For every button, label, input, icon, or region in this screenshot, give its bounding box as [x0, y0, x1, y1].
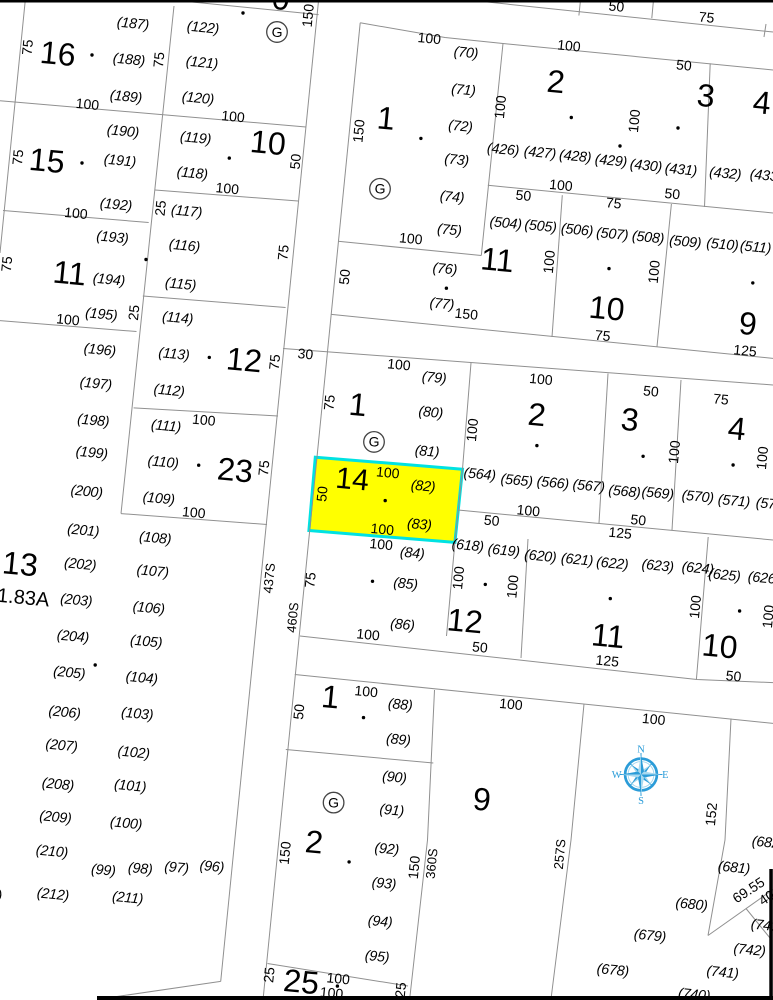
svg-text:(678): (678) [596, 961, 630, 980]
svg-text:(96): (96) [199, 858, 225, 876]
svg-text:(618): (618) [451, 536, 485, 555]
svg-text:(742): (742) [733, 941, 767, 960]
svg-text:(110): (110) [147, 453, 179, 472]
svg-text:G: G [328, 794, 339, 810]
svg-text:(626): (626) [747, 569, 773, 588]
svg-text:75: 75 [19, 39, 36, 56]
svg-text:(619): (619) [487, 542, 521, 561]
svg-text:2: 2 [526, 396, 547, 434]
svg-text:(114): (114) [161, 309, 193, 328]
svg-text:100: 100 [463, 417, 481, 442]
svg-text:(98): (98) [127, 860, 153, 878]
svg-text:(504): (504) [489, 214, 523, 233]
svg-text:50: 50 [664, 185, 681, 202]
svg-text:75: 75 [698, 8, 715, 25]
svg-text:100: 100 [665, 439, 683, 464]
svg-text:50: 50 [313, 485, 330, 502]
svg-text:100: 100 [369, 535, 394, 553]
svg-text:(622): (622) [596, 554, 630, 573]
svg-text:100: 100 [503, 574, 521, 599]
svg-text:3: 3 [619, 401, 640, 439]
svg-text:100: 100 [354, 682, 379, 700]
svg-text:125: 125 [595, 652, 620, 670]
svg-text:100: 100 [387, 355, 412, 373]
svg-text:(188): (188) [112, 51, 146, 70]
svg-text:10: 10 [587, 289, 626, 328]
svg-text:(740): (740) [677, 986, 711, 1000]
svg-text:(564): (564) [463, 465, 497, 484]
svg-text:(508): (508) [631, 228, 665, 247]
svg-text:(83): (83) [406, 516, 432, 534]
svg-text:(71): (71) [450, 81, 476, 99]
svg-text:100: 100 [398, 229, 423, 247]
svg-text:(101): (101) [113, 777, 147, 796]
svg-text:(620): (620) [524, 547, 558, 566]
svg-text:100: 100 [686, 594, 704, 619]
svg-text:(86): (86) [389, 616, 415, 634]
svg-text:100: 100 [376, 463, 401, 481]
svg-text:(90): (90) [381, 769, 407, 787]
svg-text:(80): (80) [418, 404, 444, 422]
svg-text:150: 150 [405, 855, 423, 880]
svg-text:360S: 360S [423, 847, 441, 879]
svg-text:(426): (426) [486, 140, 520, 159]
svg-text:(121): (121) [185, 54, 219, 73]
svg-text:100: 100 [417, 29, 442, 47]
svg-text:(199): (199) [75, 444, 109, 463]
svg-text:100: 100 [449, 565, 467, 590]
svg-text:11: 11 [51, 254, 88, 293]
svg-text:(103): (103) [120, 705, 154, 724]
svg-text:2: 2 [545, 63, 566, 101]
svg-text:(97): (97) [164, 859, 190, 877]
svg-text:(194): (194) [92, 271, 126, 290]
svg-text:(70): (70) [453, 44, 479, 62]
svg-text:25: 25 [392, 981, 409, 998]
svg-text:(81): (81) [414, 443, 440, 461]
svg-text:(202): (202) [63, 555, 97, 574]
svg-text:1: 1 [320, 678, 341, 716]
svg-text:4: 4 [726, 410, 747, 448]
svg-text:N: N [637, 745, 645, 756]
svg-text:50: 50 [471, 638, 488, 655]
svg-text:2: 2 [304, 823, 325, 861]
svg-text:(681): (681) [717, 859, 751, 878]
svg-text:(190): (190) [106, 122, 140, 141]
svg-text:(211): (211) [111, 889, 143, 908]
svg-text:75: 75 [712, 390, 729, 407]
svg-text:10: 10 [700, 626, 739, 665]
svg-text:(88): (88) [387, 696, 413, 714]
svg-text:25: 25 [282, 962, 321, 1000]
svg-text:(431): (431) [664, 161, 698, 180]
svg-text:11: 11 [590, 616, 627, 655]
svg-text:(191): (191) [103, 152, 137, 171]
svg-text:100: 100 [56, 310, 81, 328]
svg-text:100: 100 [641, 710, 666, 728]
svg-text:50: 50 [483, 512, 500, 529]
svg-text:(76): (76) [432, 260, 458, 278]
svg-text:50: 50 [515, 187, 532, 204]
svg-text:100: 100 [753, 445, 771, 470]
svg-text:(510): (510) [706, 235, 740, 254]
svg-text:75: 75 [9, 149, 26, 166]
svg-text:25: 25 [152, 199, 169, 216]
svg-text:100: 100 [540, 249, 558, 274]
svg-text:(623): (623) [641, 557, 675, 576]
svg-text:(428): (428) [558, 147, 592, 166]
svg-text:100: 100 [491, 94, 509, 119]
svg-text:14: 14 [334, 462, 370, 498]
svg-text:(206): (206) [48, 703, 82, 722]
svg-text:(506): (506) [560, 221, 594, 240]
svg-text:(429): (429) [594, 152, 628, 171]
svg-text:(82): (82) [410, 478, 436, 496]
svg-text:152: 152 [702, 802, 720, 827]
svg-text:150: 150 [276, 840, 294, 865]
svg-text:G: G [375, 181, 386, 197]
svg-text:(572): (572) [755, 495, 773, 514]
svg-text:(95): (95) [364, 948, 390, 966]
svg-text:(680): (680) [675, 895, 709, 914]
svg-text:G: G [272, 24, 283, 40]
svg-text:75: 75 [255, 459, 272, 476]
svg-text:75: 75 [150, 51, 167, 68]
svg-text:50: 50 [642, 382, 659, 399]
svg-text:12: 12 [225, 340, 264, 379]
svg-text:75: 75 [301, 571, 318, 588]
svg-text:(113): (113) [158, 345, 190, 364]
svg-text:(73): (73) [444, 151, 470, 169]
svg-text:(85): (85) [393, 575, 419, 593]
svg-text:(568): (568) [608, 483, 642, 502]
svg-text:(621): (621) [560, 551, 594, 570]
svg-text:25: 25 [125, 304, 142, 321]
svg-text:75: 75 [594, 327, 611, 344]
svg-text:E: E [662, 770, 668, 781]
svg-text:(109): (109) [142, 489, 176, 508]
svg-text:(102): (102) [117, 744, 151, 763]
svg-text:50: 50 [675, 56, 692, 73]
svg-text:150: 150 [349, 118, 367, 143]
svg-text:75: 75 [274, 244, 291, 261]
svg-text:(100): (100) [109, 814, 143, 833]
svg-text:(432): (432) [708, 164, 742, 183]
svg-text:50: 50 [725, 667, 742, 684]
svg-text:100: 100 [192, 411, 217, 429]
svg-text:3: 3 [695, 77, 716, 115]
svg-text:50: 50 [287, 153, 304, 170]
svg-text:(196): (196) [83, 341, 117, 360]
svg-text:(84): (84) [399, 545, 425, 563]
svg-text:(565): (565) [500, 471, 534, 490]
svg-text:1.83A: 1.83A [0, 585, 51, 612]
svg-text:(743): (743) [750, 917, 773, 936]
svg-text:100: 100 [221, 107, 246, 125]
svg-text:(208): (208) [41, 775, 75, 794]
svg-text:(433): (433) [749, 167, 773, 186]
svg-text:100: 100 [64, 204, 89, 222]
svg-text:1: 1 [375, 99, 396, 137]
svg-text:(430): (430) [629, 157, 663, 176]
svg-text:257S: 257S [551, 838, 569, 870]
svg-text:16: 16 [39, 34, 78, 73]
svg-text:(207): (207) [45, 736, 79, 755]
svg-text:(427): (427) [523, 144, 557, 163]
svg-text:(507): (507) [595, 225, 629, 244]
svg-text:(570): (570) [681, 488, 715, 507]
svg-text:100: 100 [75, 95, 100, 113]
svg-text:460S: 460S [284, 601, 302, 633]
svg-text:S: S [638, 796, 644, 807]
svg-text:50: 50 [336, 268, 353, 285]
svg-text:100: 100 [319, 984, 344, 1000]
svg-text:(741): (741) [706, 963, 740, 982]
svg-text:(74): (74) [439, 188, 465, 206]
svg-text:(195): (195) [85, 305, 119, 324]
svg-text:100: 100 [759, 604, 773, 629]
svg-text:1: 1 [347, 386, 368, 424]
svg-text:(509): (509) [668, 233, 702, 252]
svg-text:(116): (116) [168, 237, 200, 256]
svg-text:(79): (79) [421, 369, 447, 387]
svg-text:(198): (198) [76, 411, 110, 430]
svg-text:30: 30 [297, 345, 314, 362]
svg-text:(187): (187) [116, 15, 150, 34]
svg-text:(210): (210) [35, 842, 69, 861]
svg-text:(122): (122) [186, 19, 220, 38]
svg-text:(201): (201) [66, 521, 100, 540]
svg-text:12: 12 [446, 601, 485, 640]
svg-text:(104): (104) [125, 669, 159, 688]
svg-text:(571): (571) [717, 492, 751, 511]
svg-text:100: 100 [625, 108, 643, 133]
svg-text:10: 10 [249, 123, 288, 162]
svg-text:100: 100 [557, 36, 582, 54]
svg-text:(567): (567) [572, 477, 606, 496]
svg-text:(205): (205) [52, 664, 86, 683]
svg-text:100: 100 [215, 179, 240, 197]
svg-text:(200): (200) [70, 483, 104, 502]
svg-text:(93): (93) [371, 875, 397, 893]
svg-text:(189): (189) [109, 88, 143, 107]
svg-text:(89): (89) [385, 731, 411, 749]
svg-text:(77): (77) [429, 295, 455, 313]
svg-text:(105): (105) [129, 633, 163, 652]
svg-text:50: 50 [290, 703, 307, 720]
svg-text:23: 23 [216, 450, 255, 489]
svg-text:75: 75 [320, 394, 337, 411]
svg-text:100: 100 [549, 176, 574, 194]
svg-text:75: 75 [266, 353, 283, 370]
svg-text:(505): (505) [524, 217, 558, 236]
svg-text:4: 4 [751, 84, 772, 122]
svg-text:(112): (112) [153, 381, 185, 400]
svg-text:(193): (193) [96, 228, 130, 247]
svg-text:150: 150 [299, 3, 317, 28]
svg-text:100: 100 [182, 503, 207, 521]
svg-text:13: 13 [1, 544, 40, 583]
svg-text:(566): (566) [536, 474, 570, 493]
svg-text:(92): (92) [374, 840, 400, 858]
svg-text:125: 125 [733, 341, 758, 359]
svg-text:(511): (511) [739, 238, 771, 257]
svg-text:150: 150 [454, 305, 479, 323]
svg-text:(682): (682) [751, 834, 773, 853]
svg-text:75: 75 [605, 194, 622, 211]
svg-text:(72): (72) [447, 118, 473, 136]
svg-text:75: 75 [0, 255, 15, 272]
svg-text:(204): (204) [56, 627, 90, 646]
svg-text:(569): (569) [641, 484, 675, 503]
svg-text:(120): (120) [181, 89, 215, 108]
svg-text:125: 125 [608, 524, 633, 542]
svg-text:(679): (679) [633, 927, 667, 946]
svg-text:(91): (91) [379, 802, 405, 820]
svg-text:(108): (108) [138, 529, 172, 548]
svg-text:(625): (625) [708, 566, 742, 585]
svg-text:11: 11 [479, 240, 516, 279]
svg-text:(212): (212) [36, 885, 70, 904]
svg-text:100: 100 [516, 501, 541, 519]
svg-text:(203): (203) [59, 591, 93, 610]
svg-text:W: W [612, 770, 622, 781]
svg-text:(115): (115) [164, 275, 196, 294]
svg-text:(117): (117) [170, 202, 202, 221]
svg-text:(119): (119) [179, 129, 211, 148]
svg-text:(107): (107) [136, 562, 170, 581]
svg-text:(192): (192) [99, 196, 133, 215]
svg-text:9: 9 [737, 305, 758, 343]
svg-text:(197): (197) [79, 375, 113, 394]
svg-text:100: 100 [645, 259, 663, 284]
svg-text:50: 50 [608, 0, 625, 15]
svg-text:(94): (94) [367, 913, 393, 931]
svg-text:(209): (209) [39, 808, 73, 827]
svg-text:(111): (111) [150, 417, 181, 436]
svg-text:100: 100 [529, 370, 554, 388]
svg-text:(99): (99) [90, 862, 116, 880]
svg-text:(118): (118) [176, 164, 208, 183]
svg-text:G: G [369, 434, 380, 450]
svg-text:437S: 437S [260, 562, 278, 594]
svg-text:100: 100 [356, 625, 381, 643]
svg-text:25: 25 [260, 966, 277, 983]
svg-text:100: 100 [499, 695, 524, 713]
svg-text:15: 15 [28, 141, 67, 180]
svg-text:(106): (106) [132, 599, 166, 618]
svg-text:(75): (75) [436, 221, 462, 239]
svg-text:9: 9 [471, 780, 492, 818]
